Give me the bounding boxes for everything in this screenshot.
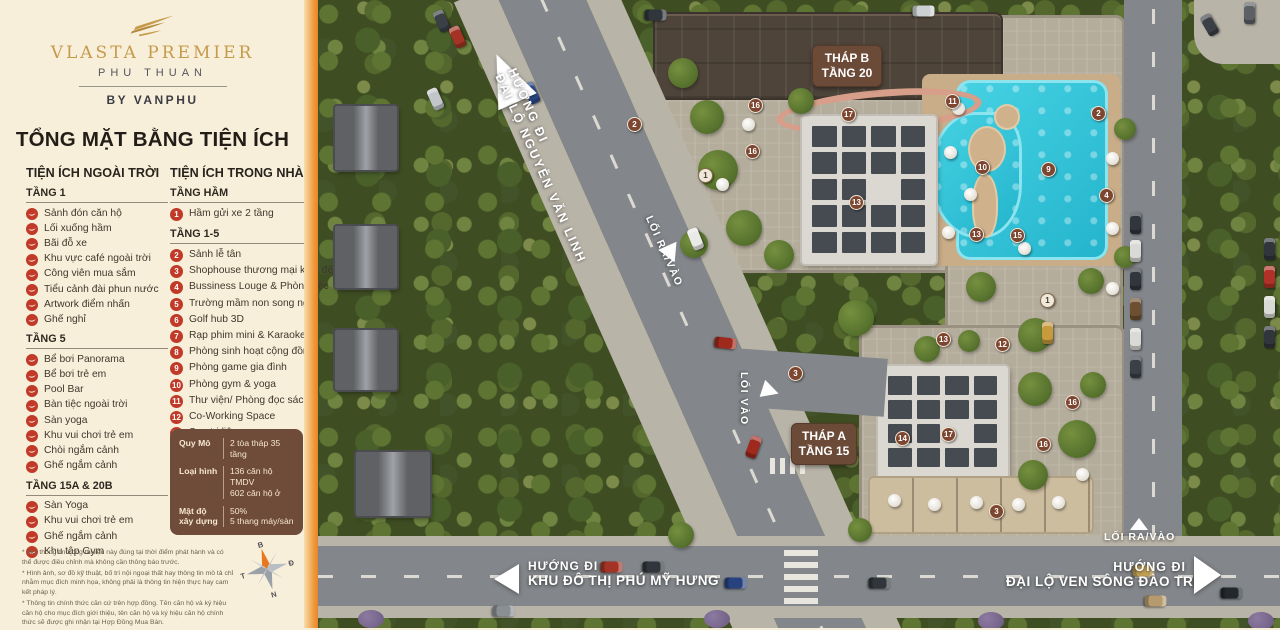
building-unit xyxy=(812,179,837,200)
map-amenity-badge: 12 xyxy=(995,337,1010,352)
legend-item-number: 7 xyxy=(170,330,183,343)
legend-item: Tiểu cảnh đài phun nước xyxy=(26,284,168,296)
legend-item-label: Lối xuống hầm xyxy=(44,224,112,235)
legend-item: Ghế ngắm cảnh xyxy=(26,461,168,473)
tree-canopy xyxy=(668,522,694,548)
parked-car xyxy=(493,606,515,617)
legend-item-number: 4 xyxy=(170,281,183,294)
amenity-marker-icon xyxy=(26,430,38,442)
map-amenity-badge: 13 xyxy=(849,195,864,210)
map-amenity-badge: 16 xyxy=(1065,395,1080,410)
legend-item-number: 12 xyxy=(170,411,183,424)
legend-group: TẦNG 1-52Sảnh lễ tân3Shophouse thương mạ… xyxy=(170,228,304,440)
legend-group: TẦNG 5Bể bơi PanoramaBể bơi trẻ emPool B… xyxy=(26,333,168,472)
building-unit xyxy=(974,376,998,395)
legend-item-label: Công viên mua sắm xyxy=(44,269,136,280)
map-amenity-badge: 14 xyxy=(895,431,910,446)
building-unit xyxy=(901,179,926,200)
umbrella xyxy=(742,118,755,131)
umbrella xyxy=(944,146,957,159)
building-unit xyxy=(871,232,896,253)
parked-car xyxy=(1130,268,1141,290)
umbrella xyxy=(716,178,729,191)
legend-item: Công viên mua sắm xyxy=(26,269,168,281)
legend-group: TẦNG 15A & 20BSàn YogaKhu vui chơi trẻ e… xyxy=(26,480,168,559)
tree-canopy xyxy=(1080,372,1106,398)
legend-item-label: Bàn tiệc ngoài trời xyxy=(44,400,127,411)
legend-group: TẦNG HẦM1Hầm gửi xe 2 tầng xyxy=(170,187,304,221)
legend-item: 2Sảnh lễ tân xyxy=(170,249,304,262)
map-amenity-badge: 13 xyxy=(936,332,951,347)
lane-dash xyxy=(1152,0,1155,540)
umbrella xyxy=(970,496,983,509)
site-map: 122334910111315161716131312161417161 THÁ… xyxy=(318,0,1280,628)
legend-item-label: Rạp phim mini & Karaoke xyxy=(189,331,306,342)
amenity-marker-icon xyxy=(26,223,38,235)
legend-item: 1Hầm gửi xe 2 tầng xyxy=(170,208,304,221)
tree-canopy xyxy=(958,330,980,352)
legend-item: 9Phòng game gia đình xyxy=(170,362,304,375)
map-amenity-badge: 15 xyxy=(1010,228,1025,243)
legend-item: Ghế ngắm cảnh xyxy=(26,531,168,543)
flowering-tree xyxy=(704,610,730,628)
building-unit xyxy=(842,126,867,147)
building-unit xyxy=(871,126,896,147)
indoor-heading: TIỆN ÍCH TRONG NHÀ xyxy=(170,166,304,180)
amenity-marker-icon xyxy=(26,531,38,543)
amenity-marker-icon xyxy=(26,254,38,266)
legend-item: Bể bơi trẻ em xyxy=(26,370,168,382)
tower-b-building xyxy=(802,116,936,264)
building-unit xyxy=(901,232,926,253)
building-unit xyxy=(917,376,941,395)
building-unit xyxy=(812,205,837,226)
legend-item: Ghế nghỉ xyxy=(26,314,168,326)
parked-car xyxy=(1130,356,1141,378)
legend-item-label: Phòng game gia đình xyxy=(189,363,287,374)
tree-canopy xyxy=(966,272,996,302)
tower-a-label: THÁP A TẦNG 15 xyxy=(791,423,857,465)
umbrella xyxy=(942,226,955,239)
parked-car xyxy=(1042,322,1053,344)
building-unit xyxy=(842,232,867,253)
tree-canopy xyxy=(726,210,762,246)
panel-edge-accent xyxy=(304,0,318,628)
legend-item-label: Bể bơi trẻ em xyxy=(44,370,106,381)
legend-group-title: TẦNG 5 xyxy=(26,333,168,345)
legend-item: Khu vui chơi trẻ em xyxy=(26,430,168,442)
map-amenity-badge: 13 xyxy=(969,227,984,242)
divider xyxy=(170,243,304,244)
legend-item-label: Sảnh đón căn hộ xyxy=(44,209,122,220)
amenity-marker-icon xyxy=(26,354,38,366)
tree-canopy xyxy=(1058,420,1096,458)
building-unit xyxy=(812,126,837,147)
footnote: * Thông tin chính thức căn cứ trên hợp đ… xyxy=(22,599,235,628)
parked-car xyxy=(1221,588,1243,599)
map-amenity-badge: 17 xyxy=(841,107,856,122)
legend-item: Sàn Yoga xyxy=(26,501,168,513)
legend-item: 10Phòng gym & yoga xyxy=(170,379,304,392)
legend-item-number: 11 xyxy=(170,395,183,408)
brand-name: VLASTA PREMIER xyxy=(0,43,305,63)
map-amenity-badge: 17 xyxy=(941,427,956,442)
divider xyxy=(26,495,168,496)
brand-swoosh-icon xyxy=(127,12,179,38)
map-amenity-badge: 10 xyxy=(975,160,990,175)
legend-item-label: Phòng sinh hoạt cộng đồng xyxy=(189,347,314,358)
divider xyxy=(26,348,168,349)
legend-item: 12Co-Working Space xyxy=(170,411,304,424)
legend-item-label: Co-Working Space xyxy=(189,412,275,423)
legend-item-number: 3 xyxy=(170,265,183,278)
legend-item-label: Khu vui chơi trẻ em xyxy=(44,431,133,442)
parked-car xyxy=(1264,296,1275,318)
map-amenity-badge: 9 xyxy=(1041,162,1056,177)
legend-item-number: 8 xyxy=(170,346,183,359)
legend-item-label: Khu vui chơi trẻ em xyxy=(44,516,133,527)
tree-canopy xyxy=(1114,118,1136,140)
indoor-amenities-column: TIỆN ÍCH TRONG NHÀ TẦNG HẦM1Hầm gửi xe 2… xyxy=(170,166,304,443)
amenity-marker-icon xyxy=(26,501,38,513)
dir-pmh-label: HƯỚNG ĐI KHU ĐÔ THỊ PHÚ MỸ HƯNG xyxy=(528,559,719,588)
legend-item: Bàn tiệc ngoài trời xyxy=(26,400,168,412)
amenity-marker-icon xyxy=(26,299,38,311)
footnote: * Mọi thông tin trong tài liệu này đúng … xyxy=(22,548,235,567)
map-amenity-badge: 1 xyxy=(1040,293,1055,308)
legend-item: Bãi đỗ xe xyxy=(26,238,168,250)
legend-item-label: Bể bơi Panorama xyxy=(44,355,125,366)
legend-item-number: 5 xyxy=(170,298,183,311)
legend-item-number: 10 xyxy=(170,379,183,392)
legend-item-label: Hầm gửi xe 2 tầng xyxy=(189,209,274,220)
building-unit xyxy=(901,126,926,147)
map-amenity-badge: 4 xyxy=(1099,188,1114,203)
villa-roof xyxy=(335,226,397,288)
umbrella xyxy=(964,188,977,201)
legend-group-title: TẦNG 1 xyxy=(26,187,168,199)
tree-canopy xyxy=(690,100,724,134)
umbrella xyxy=(1012,498,1025,511)
legend-item: Pool Bar xyxy=(26,385,168,397)
umbrella xyxy=(1106,152,1119,165)
tree-canopy xyxy=(838,300,874,336)
legend-item: 6Golf hub 3D xyxy=(170,314,304,327)
legend-item-label: Sàn yoga xyxy=(44,416,88,427)
entry-label: LỐI VÀO xyxy=(738,372,750,426)
building-unit xyxy=(812,152,837,173)
legend-item-label: Ghế nghỉ xyxy=(44,315,86,326)
building-unit xyxy=(871,152,896,173)
divider xyxy=(170,202,304,203)
legend-group-title: TẦNG HẦM xyxy=(170,187,304,199)
building-unit xyxy=(888,376,912,395)
legend-group: TẦNG 1Sảnh đón căn hộLối xuống hầmBãi đỗ… xyxy=(26,187,168,326)
building-unit xyxy=(917,424,941,443)
map-amenity-badge: 11 xyxy=(945,94,960,109)
exit-right-label: LỐI RA/VÀO xyxy=(1104,531,1175,543)
legend-group-title: TẦNG 15A & 20B xyxy=(26,480,168,492)
tree-canopy xyxy=(764,240,794,270)
legend-item: Khu vực café ngoài trời xyxy=(26,254,168,266)
legend-item: 5Trường mầm non song ngữ xyxy=(170,298,304,311)
umbrella xyxy=(928,498,941,511)
legend-item-label: Sảnh lễ tân xyxy=(189,250,241,261)
outdoor-heading: TIỆN ÍCH NGOÀI TRỜI xyxy=(26,166,168,180)
brand-logo: VLASTA PREMIER PHU THUAN BY VANPHU xyxy=(0,12,305,107)
legend-item-number: 1 xyxy=(170,208,183,221)
parked-car xyxy=(1264,238,1275,260)
parked-car xyxy=(1130,212,1141,234)
parked-car xyxy=(714,336,737,349)
crosswalk xyxy=(784,548,818,604)
legend-item: Sàn yoga xyxy=(26,415,168,427)
legend-item-label: Golf hub 3D xyxy=(189,315,244,326)
legend-item-label: Sàn Yoga xyxy=(44,501,88,512)
compass-west: T xyxy=(240,571,247,581)
tower-b-label: THÁP B TẦNG 20 xyxy=(812,45,882,87)
tree-canopy xyxy=(788,88,814,114)
footnotes: * Mọi thông tin trong tài liệu này đúng … xyxy=(22,548,235,630)
amenity-marker-icon xyxy=(26,284,38,296)
legend-item-label: Ghế ngắm cảnh xyxy=(44,532,117,543)
legend-panel: VLASTA PREMIER PHU THUAN BY VANPHU TỔNG … xyxy=(0,0,318,628)
info-label: Quy Mô xyxy=(179,438,223,459)
legend-item-label: Bãi đỗ xe xyxy=(44,239,87,250)
umbrella xyxy=(1018,242,1031,255)
dir-daotri-label: HƯỚNG ĐI ĐẠI LỘ VEN SÔNG ĐÀO TRÍ xyxy=(1006,560,1186,589)
legend-item-number: 6 xyxy=(170,314,183,327)
flowering-tree xyxy=(358,610,384,628)
tree-canopy xyxy=(848,518,872,542)
building-unit xyxy=(917,448,941,467)
building-unit xyxy=(945,376,969,395)
divider xyxy=(26,202,168,203)
parked-car xyxy=(913,6,935,17)
building-unit xyxy=(888,448,912,467)
map-amenity-badge: 2 xyxy=(627,117,642,132)
compass-icon: B Đ N T xyxy=(231,533,302,604)
legend-item-number: 9 xyxy=(170,362,183,375)
villa-roof xyxy=(335,330,397,390)
compass-north: B xyxy=(257,540,265,550)
info-label: Loại hình xyxy=(179,466,223,498)
tree-canopy xyxy=(1018,460,1048,490)
legend-item: Lối xuống hầm xyxy=(26,223,168,235)
tree-canopy xyxy=(668,58,698,88)
umbrella xyxy=(1106,222,1119,235)
legend-item: 3Shophouse thương mại khối đế xyxy=(170,265,304,278)
amenity-marker-icon xyxy=(26,461,38,473)
flowering-tree xyxy=(978,612,1004,628)
amenity-marker-icon xyxy=(26,445,38,457)
legend-item: 4Bussiness Louge & Phòng tiệc xyxy=(170,281,304,294)
legend-item-label: Thư viện/ Phòng đọc sách xyxy=(189,396,309,407)
info-label: Mật độ xây dựng xyxy=(179,506,223,527)
parked-car xyxy=(1264,266,1275,288)
parked-car xyxy=(1145,596,1167,607)
legend-item: Artwork điểm nhấn xyxy=(26,299,168,311)
info-value: 2 tòa tháp 35 tầng xyxy=(223,438,294,459)
outdoor-amenities-column: TIỆN ÍCH NGOÀI TRỜI TẦNG 1Sảnh đón căn h… xyxy=(26,166,168,561)
map-amenity-badge: 3 xyxy=(788,366,803,381)
parked-car xyxy=(1264,326,1275,348)
amenity-marker-icon xyxy=(26,314,38,326)
legend-item-label: Phòng gym & yoga xyxy=(189,380,276,391)
legend-item: 8Phòng sinh hoạt cộng đồng xyxy=(170,346,304,359)
info-value: 50% 5 thang máy/sàn xyxy=(223,506,294,527)
umbrella xyxy=(1106,282,1119,295)
divider xyxy=(79,86,227,87)
info-value: 136 căn hộ TMDV 602 căn hộ ở xyxy=(223,466,294,498)
building-unit xyxy=(842,152,867,173)
tree-canopy xyxy=(1018,372,1052,406)
flowering-tree xyxy=(1248,612,1274,628)
legend-item-label: Khu vực café ngoài trời xyxy=(44,254,151,265)
info-row: Quy Mô2 tòa tháp 35 tầng xyxy=(179,438,294,459)
building-unit xyxy=(888,400,912,419)
legend-item: 11Thư viện/ Phòng đọc sách xyxy=(170,395,304,408)
building-unit xyxy=(945,448,969,467)
parked-car xyxy=(448,25,467,50)
legend-item: Chòi ngắm cảnh xyxy=(26,445,168,457)
parked-car xyxy=(426,87,445,112)
exit-right-arrow-icon xyxy=(1130,518,1148,530)
legend-item-label: Chòi ngắm cảnh xyxy=(44,446,119,457)
parked-car xyxy=(725,578,747,589)
pool-island xyxy=(996,106,1018,128)
umbrella xyxy=(1052,496,1065,509)
map-amenity-badge: 2 xyxy=(1091,106,1106,121)
legend-item-label: Pool Bar xyxy=(44,385,84,396)
compass-east: Đ xyxy=(287,558,295,568)
tower-a-building xyxy=(878,366,1008,478)
bottom-sidewalk-bottom xyxy=(318,606,1280,618)
amenity-marker-icon xyxy=(26,516,38,528)
amenity-marker-icon xyxy=(26,400,38,412)
legend-item-label: Ghế ngắm cảnh xyxy=(44,461,117,472)
amenity-marker-icon xyxy=(26,385,38,397)
legend-group-title: TẦNG 1-5 xyxy=(170,228,304,240)
amenity-marker-icon xyxy=(26,238,38,250)
page-title: TỔNG MẶT BẰNG TIỆN ÍCH xyxy=(0,128,305,152)
parked-car xyxy=(1130,328,1141,350)
building-unit xyxy=(974,424,998,443)
umbrella xyxy=(888,494,901,507)
amenity-marker-icon xyxy=(26,370,38,382)
map-amenity-badge: 16 xyxy=(748,98,763,113)
compass-south: N xyxy=(270,590,278,600)
dir-pmh-arrow-icon xyxy=(494,564,519,594)
umbrella xyxy=(1076,468,1089,481)
parked-car xyxy=(1244,2,1255,24)
legend-item-label: Tiểu cảnh đài phun nước xyxy=(44,285,159,296)
building-unit xyxy=(901,152,926,173)
amenity-marker-icon xyxy=(26,208,38,220)
building-unit xyxy=(945,400,969,419)
amenity-marker-icon xyxy=(26,415,38,427)
building-unit xyxy=(974,400,998,419)
amenity-marker-icon xyxy=(26,269,38,281)
tree-canopy xyxy=(1078,268,1104,294)
villa-roof xyxy=(356,452,430,516)
legend-item-label: Trường mầm non song ngữ xyxy=(189,299,316,310)
building-unit xyxy=(917,400,941,419)
building-unit xyxy=(871,205,896,226)
building-unit xyxy=(812,232,837,253)
legend-item-number: 2 xyxy=(170,249,183,262)
brand-subtitle: PHU THUAN xyxy=(0,67,305,79)
legend-item: Bể bơi Panorama xyxy=(26,354,168,366)
parked-car xyxy=(869,578,891,589)
legend-item: Sảnh đón căn hộ xyxy=(26,208,168,220)
info-row: Loại hình136 căn hộ TMDV 602 căn hộ ở xyxy=(179,466,294,498)
legend-item-label: Artwork điểm nhấn xyxy=(44,300,130,311)
building-unit xyxy=(974,448,998,467)
dir-daotri-arrow-icon xyxy=(1194,556,1221,594)
map-amenity-badge: 16 xyxy=(745,144,760,159)
parked-car xyxy=(1130,298,1141,320)
parked-car xyxy=(1130,240,1141,262)
brand-byline: BY VANPHU xyxy=(0,93,305,107)
map-amenity-badge: 16 xyxy=(1036,437,1051,452)
parked-car xyxy=(645,10,667,21)
footnote: * Hình ảnh, sơ đồ kỹ thuật, bố trí nội n… xyxy=(22,569,235,598)
info-row: Mật độ xây dựng50% 5 thang máy/sàn xyxy=(179,506,294,527)
map-amenity-badge: 3 xyxy=(989,504,1004,519)
villa-roof xyxy=(335,106,397,170)
legend-item: 7Rạp phim mini & Karaoke xyxy=(170,330,304,343)
project-info-box: Quy Mô2 tòa tháp 35 tầngLoại hình136 căn… xyxy=(170,429,303,535)
legend-item: Khu vui chơi trẻ em xyxy=(26,516,168,528)
map-amenity-badge: 1 xyxy=(698,168,713,183)
building-unit xyxy=(901,205,926,226)
